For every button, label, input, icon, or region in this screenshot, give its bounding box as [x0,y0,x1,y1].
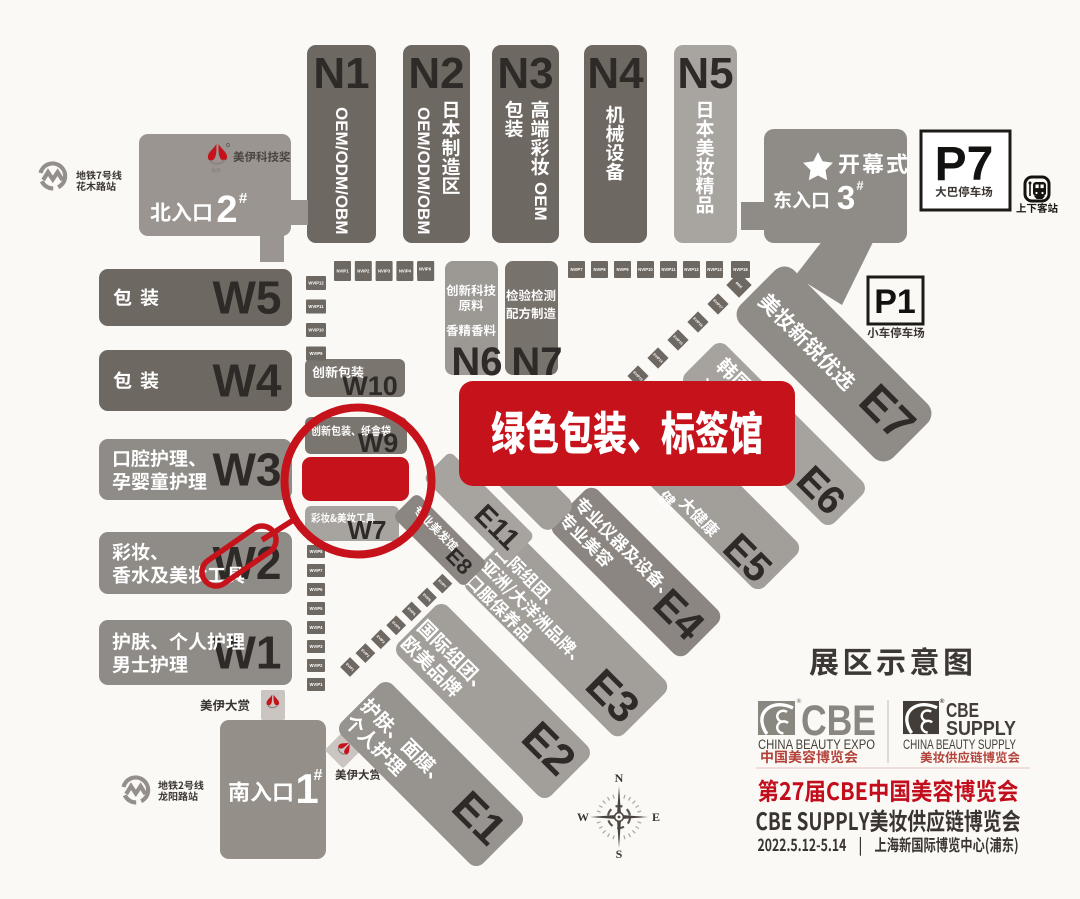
svg-text:WVIP12: WVIP12 [308,280,324,285]
svg-text:OEM: OEM [531,182,550,221]
svg-text:®: ® [940,697,945,705]
svg-text:S: S [616,847,623,861]
svg-text:3: 3 [837,179,855,216]
svg-text:N3: N3 [497,49,553,98]
svg-text:WVIP8: WVIP8 [309,549,323,554]
svg-text:CHINA BEAUTY EXPO: CHINA BEAUTY EXPO [758,737,875,752]
svg-text:W5: W5 [213,272,282,324]
svg-text:NVIP6: NVIP6 [419,266,432,271]
svg-text:NVIP9: NVIP9 [616,267,629,272]
svg-text:P1: P1 [874,283,916,321]
svg-text:NVIP1: NVIP1 [336,268,349,273]
svg-text:N4: N4 [587,49,644,98]
svg-text:W10: W10 [342,371,398,401]
svg-text:WVIP3: WVIP3 [309,644,323,649]
svg-text:WVIP6: WVIP6 [309,587,323,592]
svg-text:W1: W1 [213,627,282,679]
svg-text:WVIP7: WVIP7 [309,568,323,573]
svg-text:W: W [577,810,589,824]
svg-text:NVIP12: NVIP12 [684,267,699,272]
svg-text:WVIP5: WVIP5 [309,606,323,611]
svg-text:NVIP3: NVIP3 [378,268,391,273]
svg-text:NVIP4: NVIP4 [399,268,412,273]
svg-text:W4: W4 [213,355,282,407]
svg-text:CHINA BEAUTY SUPPLY: CHINA BEAUTY SUPPLY [903,737,1016,752]
svg-text:N6: N6 [451,340,502,384]
svg-text:N2: N2 [408,49,464,98]
svg-text:WVIP4: WVIP4 [309,625,323,630]
svg-text:WVIP9: WVIP9 [309,351,323,356]
svg-text:E: E [652,810,660,824]
svg-text:N7: N7 [511,340,562,384]
svg-text:#: # [856,178,864,193]
svg-text:N1: N1 [313,49,369,98]
svg-text:N: N [615,771,624,785]
svg-text:NVIP18: NVIP18 [733,267,748,272]
svg-text:W9: W9 [358,428,399,458]
svg-text:NVIP8: NVIP8 [593,267,606,272]
svg-text:NVIP11: NVIP11 [661,267,676,272]
svg-text:WVIP1: WVIP1 [309,682,323,687]
svg-text:#: # [314,767,323,784]
svg-text:N5: N5 [677,49,733,98]
svg-text:NVIP13: NVIP13 [707,267,722,272]
svg-text:OEM/ODM/OBM: OEM/ODM/OBM [332,107,351,235]
svg-text:NVIP7: NVIP7 [570,267,583,272]
svg-text:OEM/ODM/OBM: OEM/ODM/OBM [414,107,433,235]
svg-text:NVIP2: NVIP2 [357,268,370,273]
svg-text:NVIP10: NVIP10 [638,267,653,272]
svg-text:W3: W3 [213,444,282,496]
svg-text:P7: P7 [935,138,994,191]
svg-text:WVIP2: WVIP2 [309,663,323,668]
svg-text:2: 2 [216,189,237,231]
svg-text:#: # [239,190,248,207]
svg-text:WVIP10: WVIP10 [308,327,324,332]
svg-text:W7: W7 [348,515,387,545]
svg-text:WVIP11: WVIP11 [308,304,324,309]
svg-text:美伊: 美伊 [212,167,221,174]
